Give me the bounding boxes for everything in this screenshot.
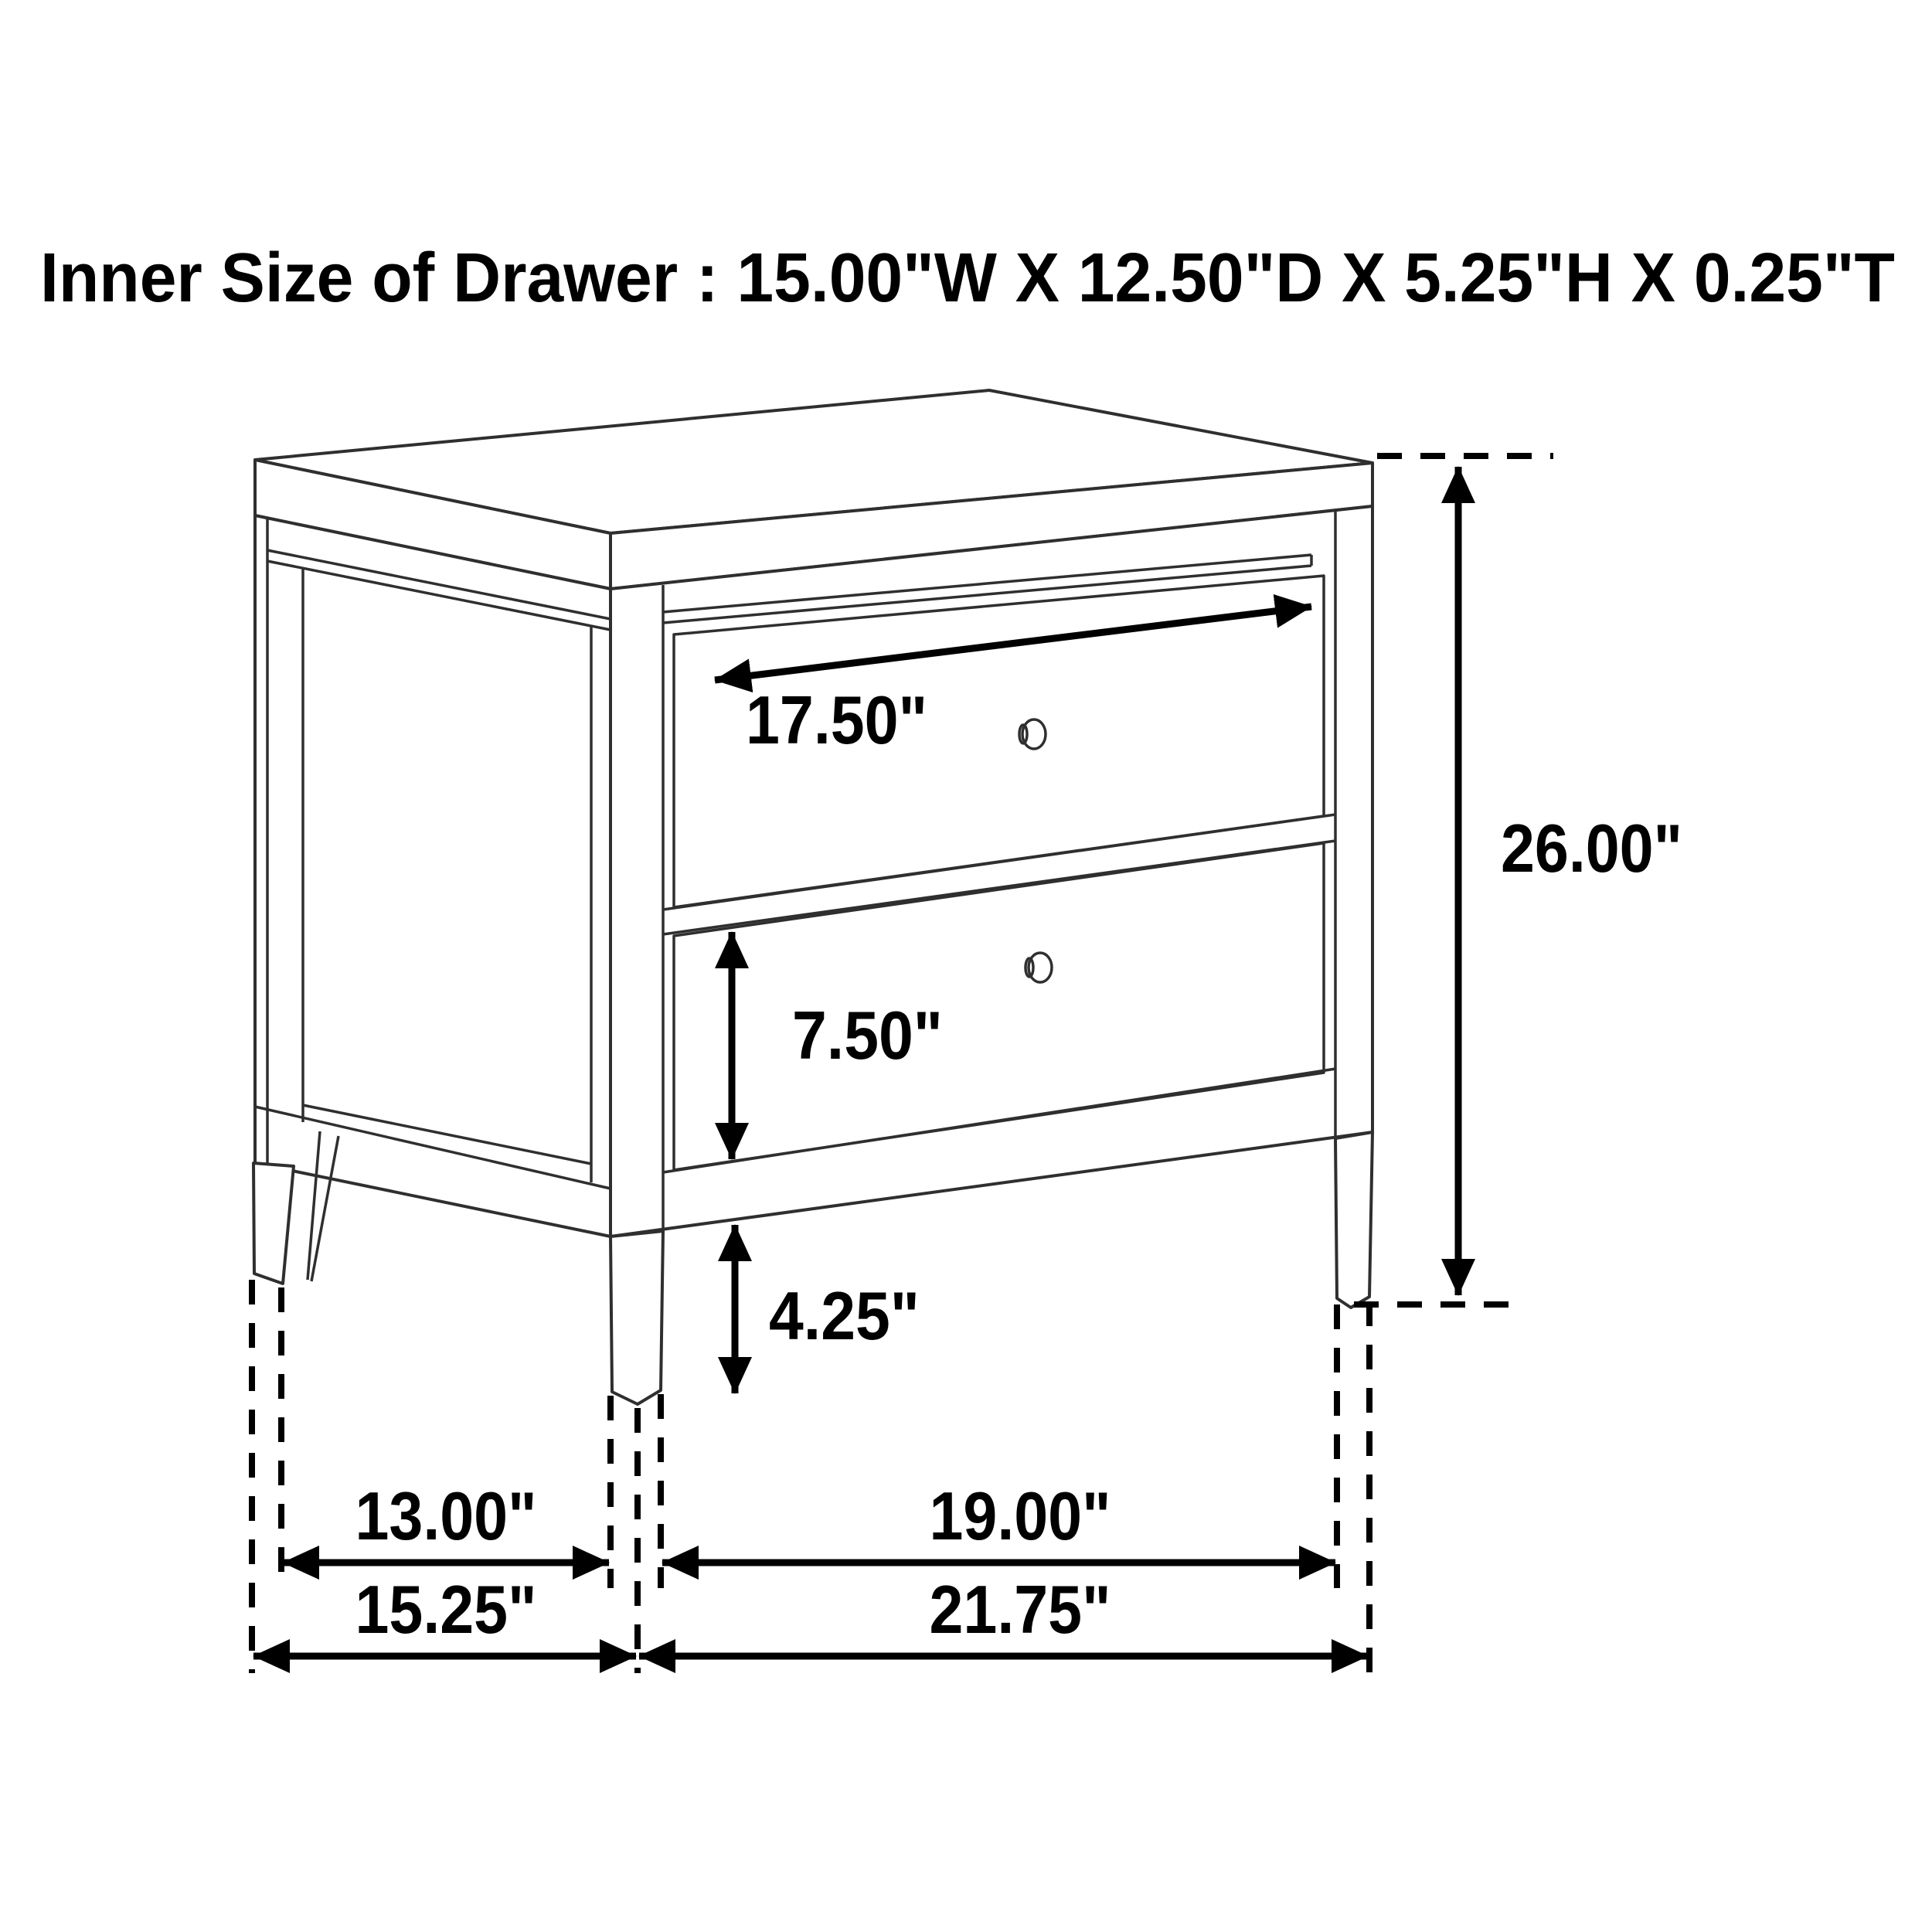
dimension-label-17-50: 17.50" xyxy=(746,682,927,758)
dimension-diagram-page: Inner Size of Drawer : 15.00"W X 12.50"D… xyxy=(0,0,1932,1932)
dimension-side-width-inner: 13.00" xyxy=(283,1478,609,1563)
nightstand-drawing xyxy=(253,390,1372,1404)
dimension-label-7-50: 7.50" xyxy=(792,997,943,1073)
dimension-side-width-outer: 15.25" xyxy=(253,1571,636,1656)
dimension-front-width-inner: 19.00" xyxy=(662,1478,1335,1563)
dimension-overall-height: 26.00" xyxy=(1458,467,1682,1295)
front-left-leg xyxy=(611,1231,663,1404)
diagram-title: Inner Size of Drawer : 15.00"W X 12.50"D… xyxy=(40,240,1895,317)
dimension-label-15-25: 15.25" xyxy=(355,1571,537,1648)
side-panel xyxy=(255,515,611,1236)
dimension-label-4-25: 4.25" xyxy=(769,1277,920,1354)
front-right-leg xyxy=(1335,1132,1372,1308)
dimension-label-13-00: 13.00" xyxy=(355,1478,537,1554)
dimension-label-19-00: 19.00" xyxy=(930,1478,1111,1554)
dimension-leg-height: 4.25" xyxy=(735,1225,920,1393)
dimension-front-width-outer: 21.75" xyxy=(639,1571,1368,1656)
dimension-label-26-00: 26.00" xyxy=(1501,810,1682,886)
nightstand-dimension-diagram: Inner Size of Drawer : 15.00"W X 12.50"D… xyxy=(0,0,1932,1932)
back-left-leg xyxy=(253,1163,294,1284)
dimension-label-21-75: 21.75" xyxy=(930,1571,1111,1648)
